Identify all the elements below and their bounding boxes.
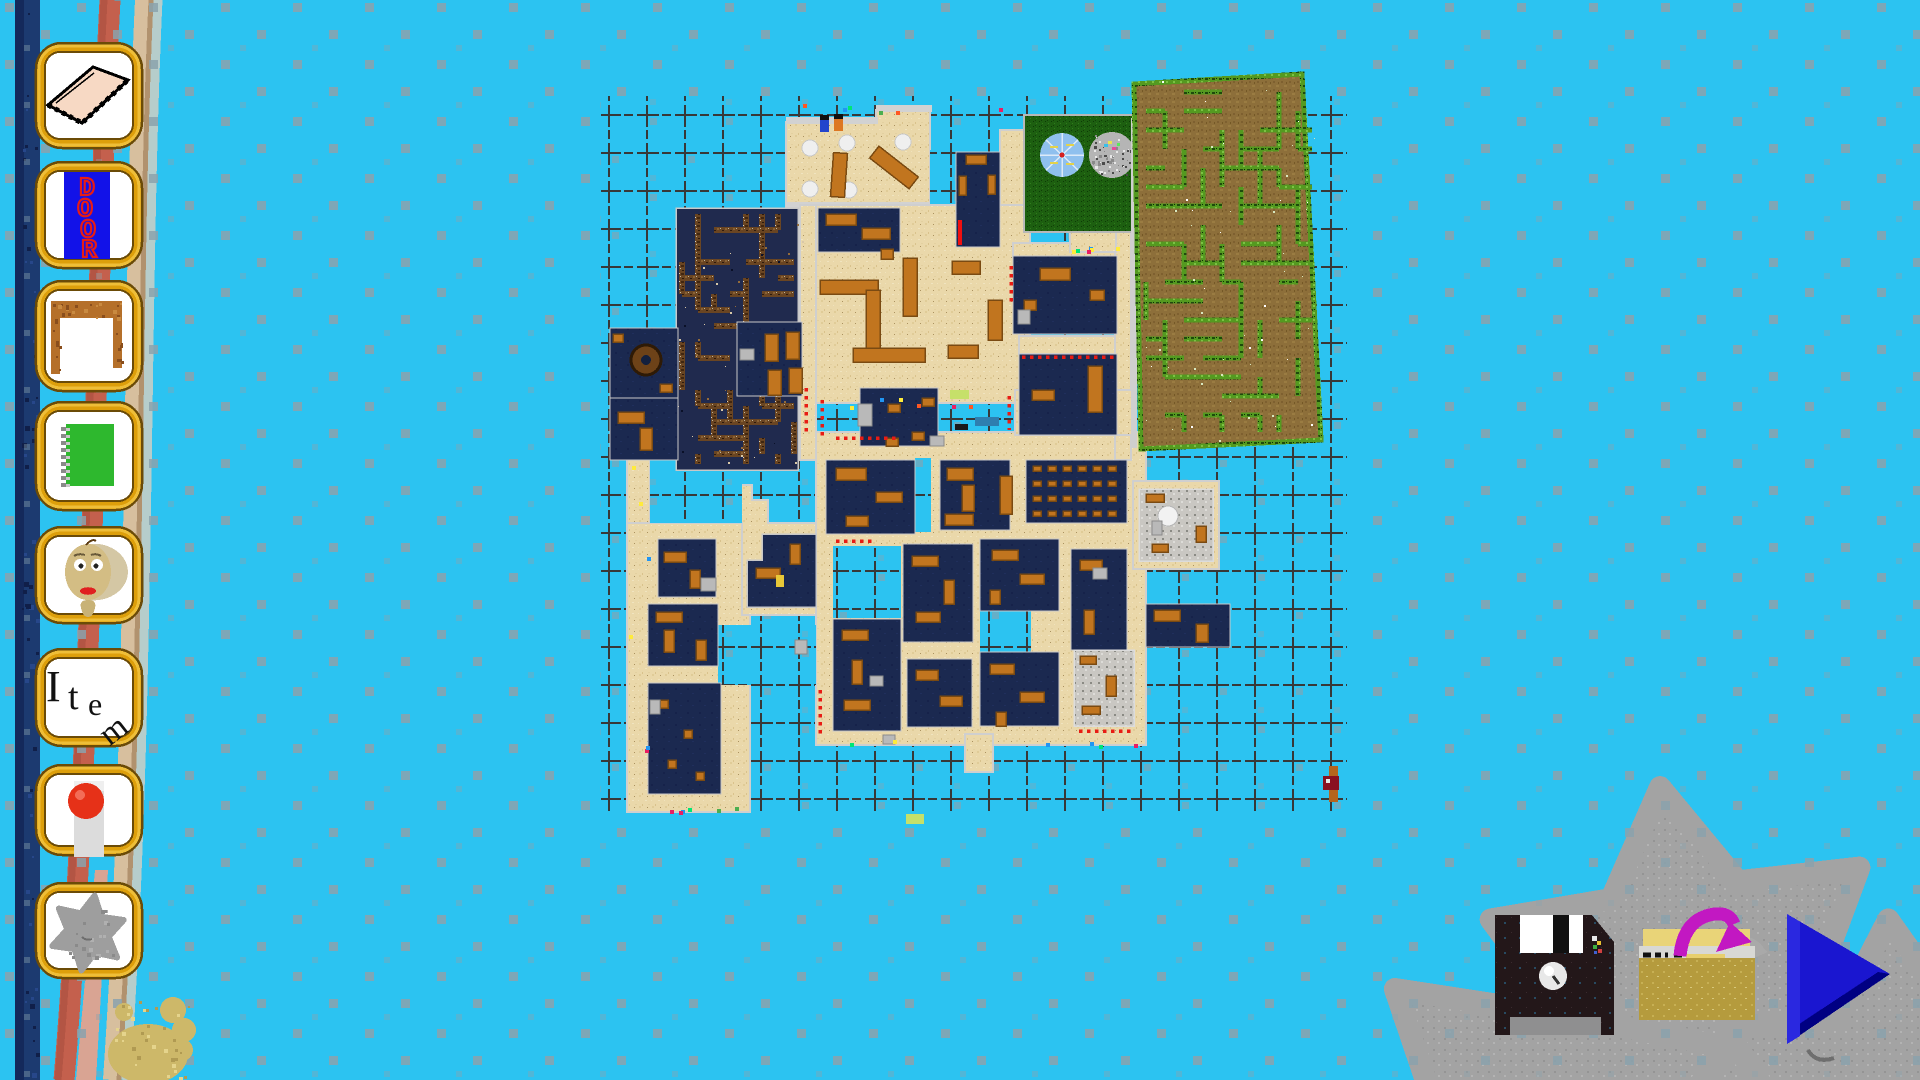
svg-text:I: I	[46, 662, 61, 711]
svg-text:R: R	[81, 235, 97, 265]
svg-text:t: t	[68, 676, 79, 718]
